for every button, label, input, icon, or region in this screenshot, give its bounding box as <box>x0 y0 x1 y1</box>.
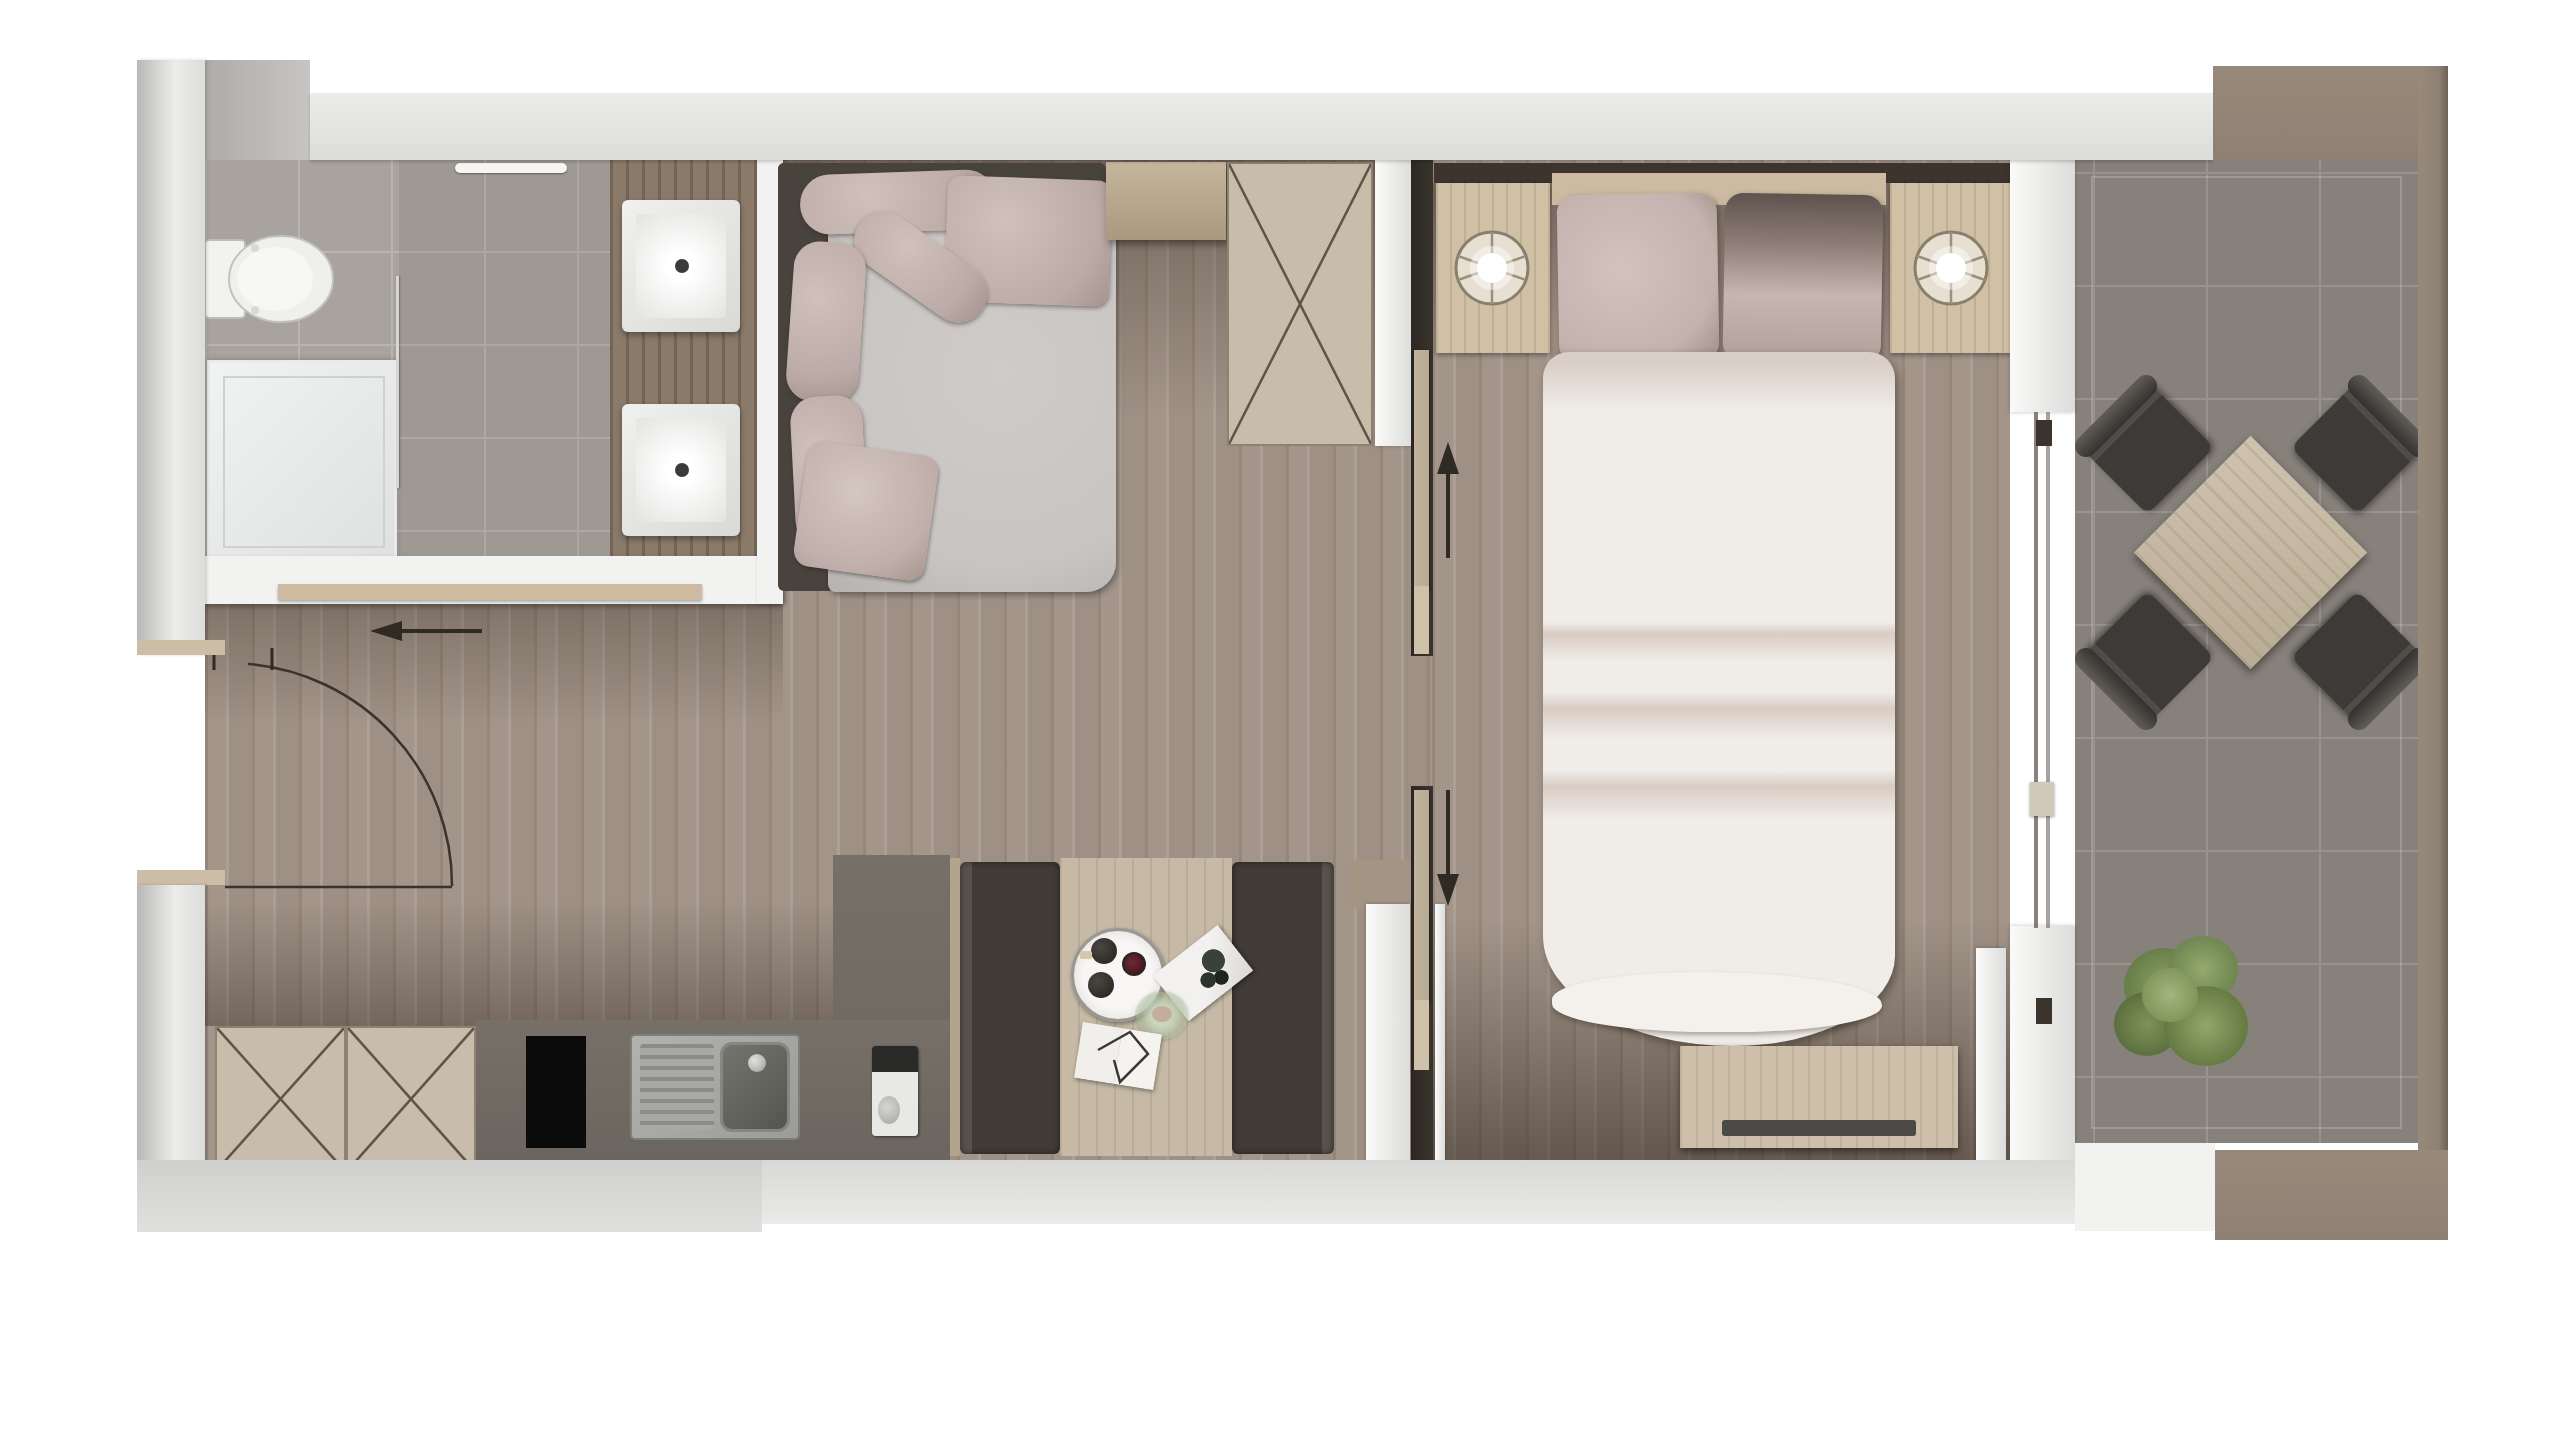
glass-door-handle-top <box>2036 420 2052 446</box>
sliding-glass-door-rail-2 <box>2046 412 2050 928</box>
west-wall-upper <box>137 60 205 655</box>
sliding-door-bottom-tip <box>1414 1000 1429 1070</box>
west-wall-upper-cap <box>137 640 225 655</box>
sliding-door-top-tip <box>1414 586 1429 654</box>
partition-wall-bottom <box>1366 904 1410 1160</box>
wardrobe <box>1227 162 1373 446</box>
sliding-door-bottom <box>1414 790 1429 1002</box>
coffee-cup <box>878 1096 900 1124</box>
nook-bench-right <box>1232 862 1334 1154</box>
balcony-pier-top <box>2010 160 2075 412</box>
bed-pillow-left <box>1557 193 1720 364</box>
tray-cup-3 <box>1088 972 1114 998</box>
kitchen-cabinet-1 <box>215 1026 346 1172</box>
balcony-frame-right <box>2418 66 2448 1240</box>
cooktop <box>526 1036 586 1148</box>
bed-duvet <box>1543 352 1895 1046</box>
balcony-frame-top <box>2213 66 2448 160</box>
potted-plant <box>2106 928 2266 1088</box>
tv-bar <box>1722 1120 1916 1136</box>
floor-plan <box>0 0 2560 1440</box>
nook-bench-left <box>960 862 1060 1154</box>
partition-wall-bottom-thin <box>1435 904 1445 1160</box>
wardrobe-x-symbol <box>1229 164 1371 444</box>
tray-snack <box>1080 951 1092 959</box>
west-wall-lower <box>137 885 205 1165</box>
cabinet-x-symbol <box>348 1028 474 1170</box>
sink-drain-1 <box>675 259 689 273</box>
south-wall-left <box>137 1160 762 1232</box>
west-wall-lower-cap <box>137 870 225 885</box>
balcony-pier-bottom <box>2010 926 2075 1160</box>
toilet <box>203 232 339 326</box>
sliding-door-top <box>1414 350 1429 590</box>
partition-wall-top <box>1375 160 1413 446</box>
lamp-left <box>1452 228 1532 308</box>
bedroom-wall-stub <box>1976 948 2006 1160</box>
nook-head-panel <box>1348 860 1410 908</box>
tray-cup-1 <box>1091 938 1117 964</box>
balcony-south-wall-strip <box>2075 1143 2215 1231</box>
tray-cup-2 <box>1122 952 1146 976</box>
entry-arrow <box>368 616 484 646</box>
island-edge <box>950 858 960 1156</box>
plant-foliage <box>2142 968 2198 1022</box>
sink-drain-2 <box>675 463 689 477</box>
entry-door-swing <box>180 600 480 910</box>
sink-drainboard <box>640 1044 714 1130</box>
kitchen-cabinet-2 <box>346 1026 476 1172</box>
sliding-glass-door-rail-1 <box>2034 412 2038 928</box>
shower-glass-screen <box>396 276 399 488</box>
glass-door-mullion <box>2030 782 2054 816</box>
north-wall <box>310 93 2213 160</box>
bathroom-shelf <box>278 584 702 600</box>
arrow-up <box>1432 440 1464 560</box>
sofa-cushion-throw <box>792 439 940 582</box>
arrow-down <box>1432 788 1464 908</box>
cabinet-x-symbol <box>217 1028 344 1170</box>
bed-pillow-right <box>1723 193 1884 364</box>
sink-faucet <box>748 1054 766 1072</box>
south-wall-center <box>762 1160 2213 1224</box>
shower-tray-inner <box>223 376 385 548</box>
lamp-right <box>1911 228 1991 308</box>
book-wire <box>1090 1020 1160 1090</box>
coffee-machine <box>872 1046 918 1136</box>
towel-rail <box>455 163 567 173</box>
side-cabinet <box>1106 162 1226 240</box>
glass-door-handle-bottom <box>2036 998 2052 1024</box>
sofa-cushion-left-1 <box>785 240 868 405</box>
balcony-frame-bottom <box>2215 1150 2448 1240</box>
